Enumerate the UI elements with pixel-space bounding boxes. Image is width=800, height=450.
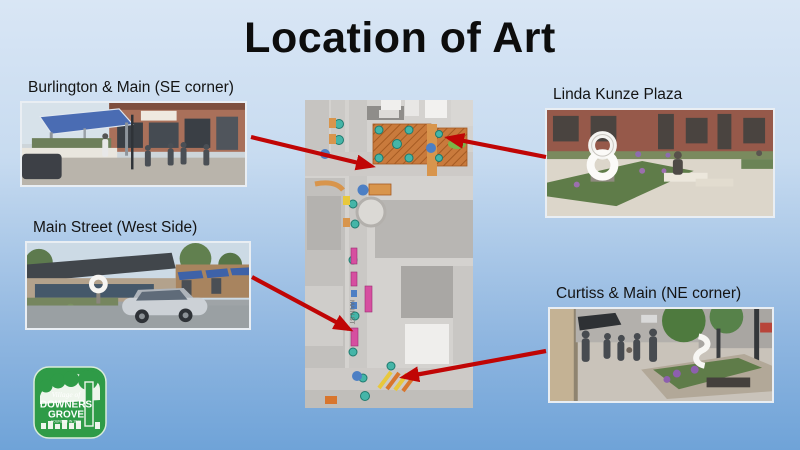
location-linda-kunze-plaza: Linda Kunze Plaza: [545, 86, 775, 218]
location-main-street-west: Main Street (West Side): [25, 219, 251, 330]
linda-kunze-plaza-label: Linda Kunze Plaza: [553, 86, 775, 104]
location-burlington-main: Burlington & Main (SE corner): [20, 79, 247, 187]
main-street-west-label: Main Street (West Side): [33, 219, 251, 237]
curtiss-main-rendering-image: [548, 307, 774, 403]
slide: Location of Art Burlington & Main (SE co…: [0, 0, 800, 450]
location-curtiss-main: Curtiss & Main (NE corner): [548, 285, 774, 403]
downtown-aerial-map: MAIN ST: [305, 100, 473, 408]
curtiss-main-label: Curtiss & Main (NE corner): [556, 285, 774, 303]
burlington-main-label: Burlington & Main (SE corner): [28, 79, 247, 97]
logo-village-of-text: Village of: [52, 390, 82, 399]
linda-kunze-plaza-rendering-image: [545, 108, 775, 218]
downers-grove-logo: Village of DOWNERS GROVE FOUNDED IN 1832: [33, 366, 107, 439]
map-street-name: MAIN ST: [348, 300, 354, 325]
main-street-west-rendering-image: [25, 241, 251, 330]
page-title: Location of Art: [0, 14, 800, 63]
logo-founded-text: FOUNDED IN 1832: [51, 420, 81, 424]
burlington-main-rendering-image: [20, 101, 247, 187]
